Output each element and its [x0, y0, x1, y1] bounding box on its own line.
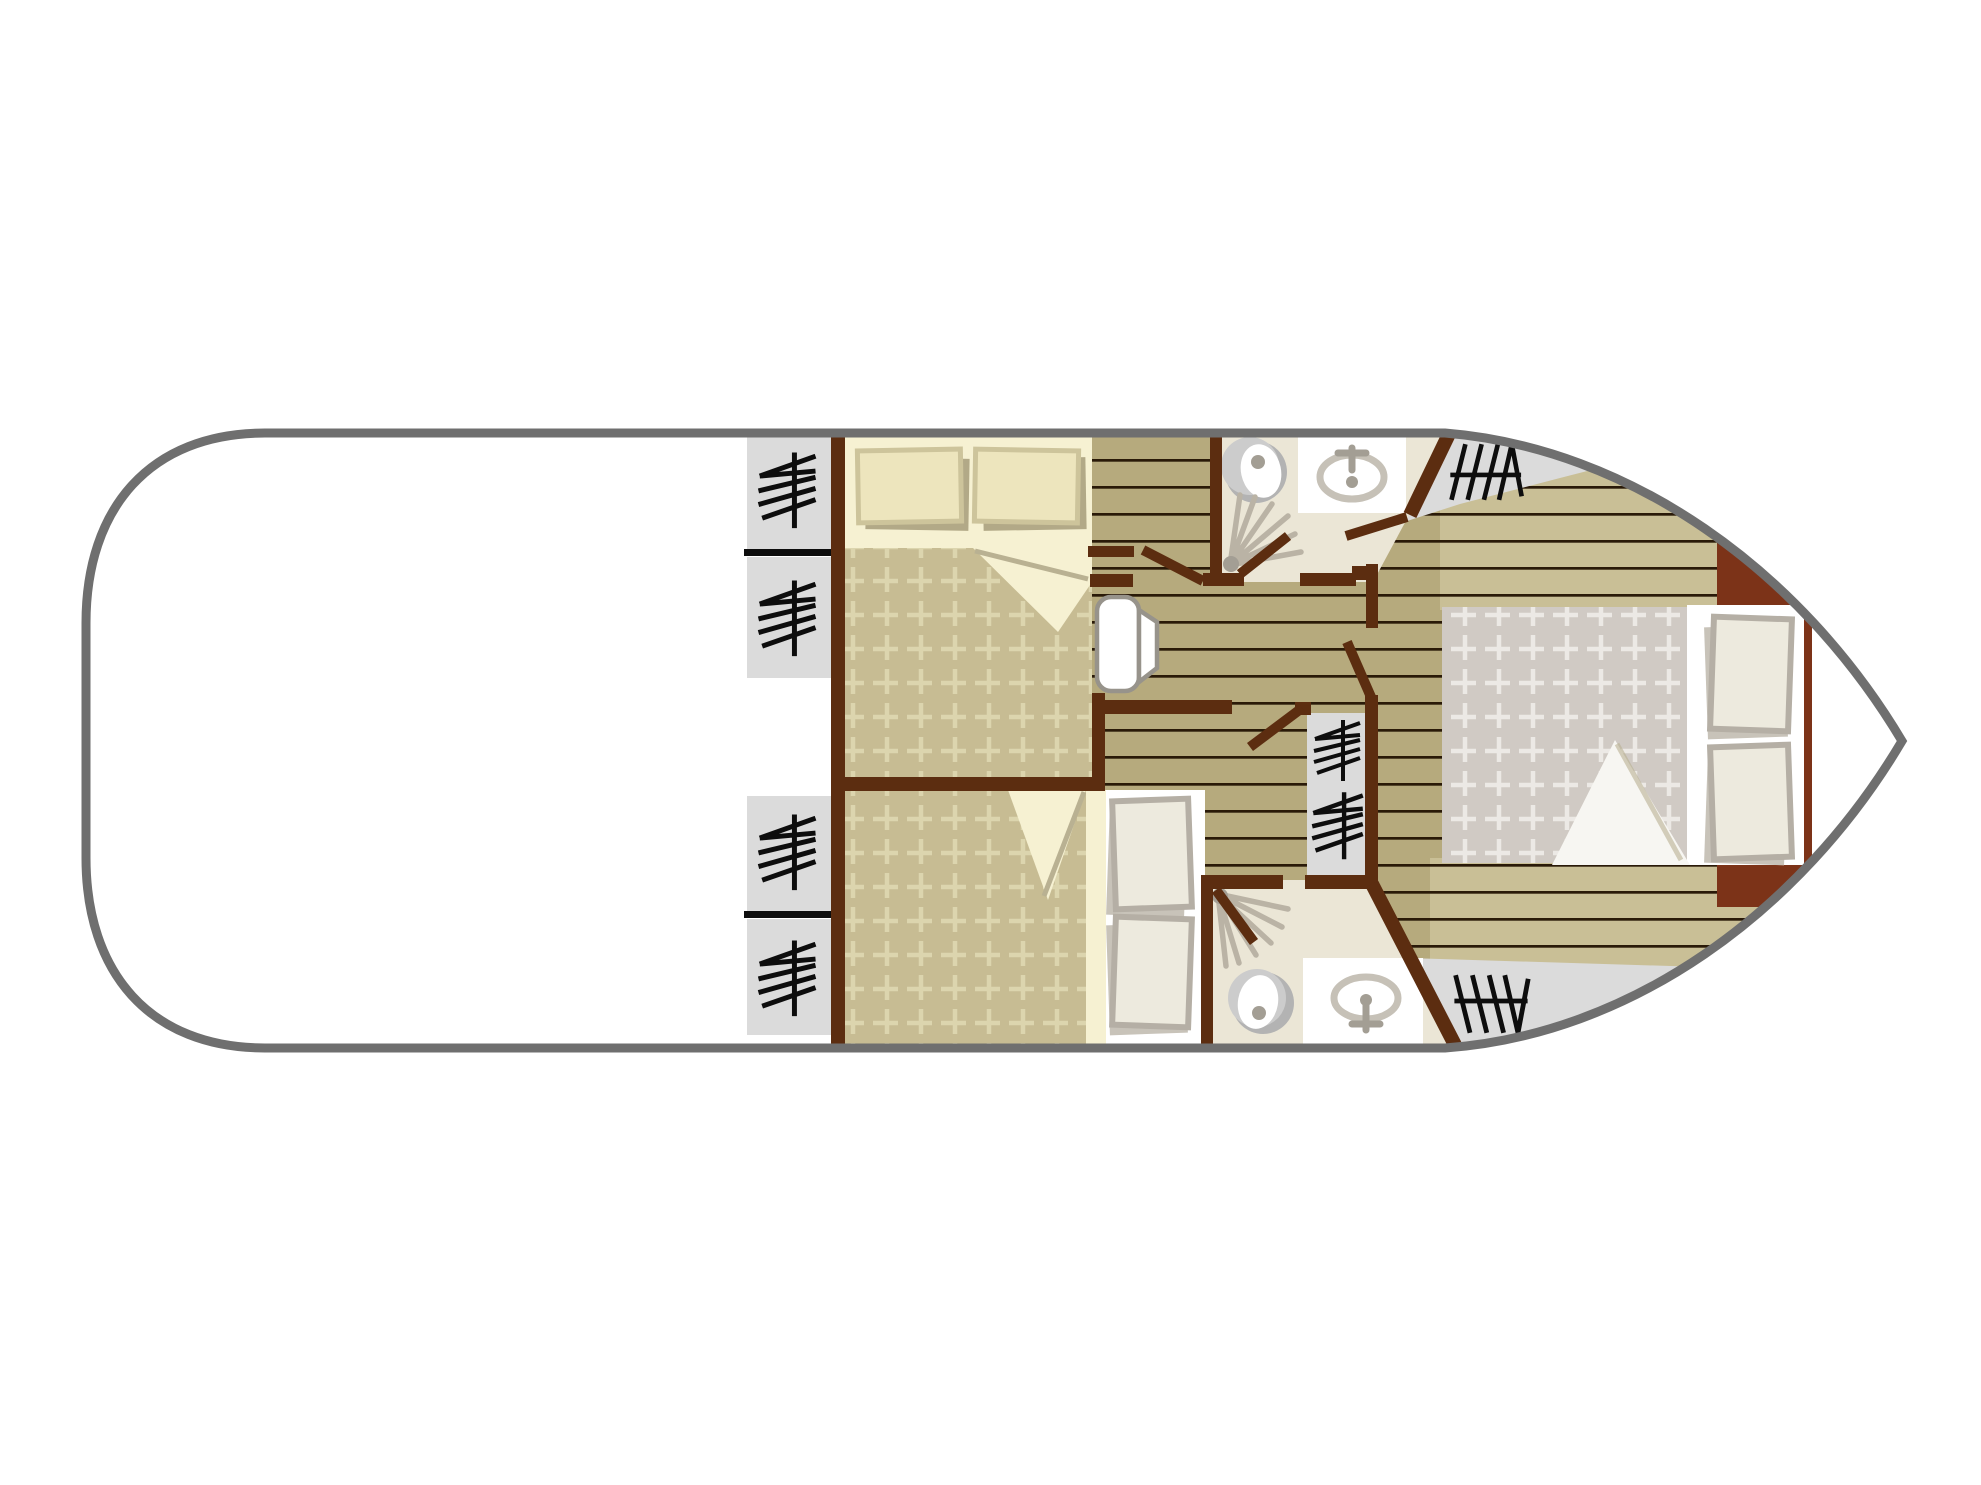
pillow: [1106, 799, 1192, 918]
boat-floor-plan: Boat deck floor plan (top view, bow to t…: [0, 0, 1981, 1485]
pillow: [857, 449, 969, 531]
wall-bath-upper-south-b: [1300, 573, 1356, 586]
pillow: [1106, 917, 1192, 1036]
wall-stub-cabin-door-b: [1090, 574, 1133, 587]
wall-stub-cabin-door-a: [1088, 546, 1134, 557]
pillow: [974, 449, 1086, 531]
wall-bath-upper-south-a: [1203, 573, 1244, 586]
bed-cabin-upper: [845, 433, 1092, 785]
mattress-edge: [1086, 790, 1106, 1048]
floor-plan-page: Boat deck floor plan (top view, bow to t…: [0, 0, 1981, 1485]
washbasin: [1298, 433, 1406, 513]
wardrobe-column-upper: [744, 434, 834, 678]
hallway-wardrobe: [1307, 713, 1365, 885]
wall-bath-upper-left: [1210, 433, 1222, 585]
wall-between-cabins: [845, 777, 1105, 791]
washbasin: [1303, 958, 1423, 1046]
pillow: [1704, 617, 1792, 740]
bed-cabin-lower: [845, 790, 1205, 1048]
wall-bath-lower-north-b: [1305, 875, 1375, 889]
wardrobe-column-lower: [744, 796, 834, 1035]
wardrobe-divider: [744, 911, 834, 918]
wall-wardrobe-right: [1365, 695, 1378, 887]
wall-bath-lower-left: [1201, 875, 1213, 1048]
pillow: [1704, 745, 1792, 866]
wall-corridor-south: [1092, 700, 1232, 714]
wardrobe-divider: [744, 549, 834, 556]
wall-cabins-left: [831, 433, 845, 1049]
bow-tip-area: [1812, 433, 1932, 1050]
wall-bath-lower-north-a: [1201, 875, 1283, 889]
